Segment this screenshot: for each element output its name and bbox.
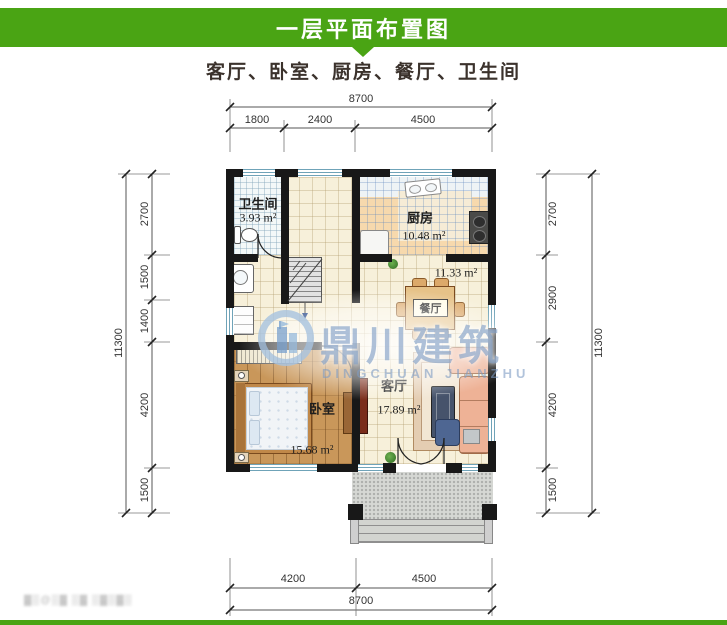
floor-plan-page: 一层平面布置图 客厅、卧室、厨房、餐厅、卫生间 餐厅 — [0, 0, 727, 625]
dim-left-total: 11300 — [113, 328, 125, 358]
dim-left-seg3: 1400 — [139, 309, 151, 333]
toilet-tank — [234, 226, 241, 244]
pillow — [249, 420, 260, 445]
dining-area: 11.33 m² — [435, 266, 478, 281]
porch-floor — [352, 472, 493, 519]
step-post-left — [350, 519, 359, 544]
kitchen-stove — [469, 211, 489, 244]
wall-kitchen-left — [352, 169, 360, 262]
room-list-subtitle: 客厅、卧室、厨房、餐厅、卫生间 — [0, 57, 727, 84]
building-logo — [258, 310, 314, 366]
wall-bathroom-right — [281, 169, 289, 262]
toilet-bowl — [241, 228, 258, 242]
footer-blurred-watermark: ▓▒@▒▓ ▒▓ ▒▓▒▓▒ — [24, 595, 133, 606]
window-kitchen — [390, 169, 452, 177]
stove-burner-2 — [473, 230, 486, 242]
porch-post-right — [482, 504, 497, 520]
dim-left-seg5: 1500 — [139, 478, 151, 502]
dim-right-seg1: 2700 — [547, 202, 559, 226]
bottom-green-strip — [0, 620, 727, 625]
window-bathroom — [243, 169, 275, 177]
wall-bathroom-bottom — [234, 254, 258, 262]
dim-right-total: 11300 — [593, 328, 605, 358]
building-logo-glyph — [265, 317, 307, 359]
dim-bottom-seg2: 4500 — [412, 573, 436, 585]
lamp-bottom — [238, 454, 245, 461]
sink-bowl-right — [425, 183, 438, 193]
wall-kitchen-bottom-left — [352, 254, 392, 262]
living-area: 17.89 m² — [378, 403, 421, 418]
dim-right-seg2: 2900 — [547, 286, 559, 310]
porch-post-left — [348, 504, 363, 520]
hall-basin — [233, 270, 248, 285]
window-living-bottom-right — [462, 464, 478, 472]
dim-left-seg2: 1500 — [139, 265, 151, 289]
dim-bottom-total: 8700 — [349, 595, 373, 607]
header-arrow-pointer — [352, 47, 374, 57]
door-jamb-right — [446, 463, 462, 473]
dim-top-seg3: 4500 — [411, 114, 435, 126]
dim-left-seg1: 2700 — [139, 202, 151, 226]
bedroom-area: 15.68 m² — [291, 443, 334, 458]
bedroom-label: 卧室 — [309, 399, 335, 418]
dim-right-seg4: 1500 — [547, 478, 559, 502]
header-bar: 一层平面布置图 — [0, 8, 727, 47]
step-post-right — [484, 519, 493, 544]
entry-steps — [350, 519, 493, 543]
refrigerator — [360, 230, 389, 256]
front-door-opening — [396, 464, 446, 472]
door-jamb-left — [383, 463, 396, 473]
armchair — [435, 419, 460, 446]
window-bedroom-bottom — [250, 464, 317, 472]
sink-bowl-left — [409, 184, 422, 194]
kitchen-label: 厨房 — [407, 208, 433, 227]
watermark-cn: 鼎川建筑 — [320, 312, 504, 372]
window-living-bottom-left — [358, 464, 383, 472]
dim-right-seg3: 4200 — [547, 393, 559, 417]
stove-burner-1 — [473, 216, 486, 228]
dim-top-seg1: 1800 — [245, 114, 269, 126]
window-stair — [298, 169, 342, 177]
window-hall-left — [226, 308, 234, 335]
kitchen-area: 10.48 m² — [403, 229, 446, 244]
dim-left-seg4: 4200 — [139, 393, 151, 417]
watermark-en: DINGCHUAN JIANZHU — [322, 366, 529, 381]
wall-kitchen-bottom-right — [446, 254, 496, 262]
dim-top-seg2: 2400 — [308, 114, 332, 126]
page-title: 一层平面布置图 — [276, 12, 451, 44]
side-table — [463, 429, 480, 444]
dim-bottom-seg1: 4200 — [281, 573, 305, 585]
bathroom-area: 3.93 m² — [240, 211, 277, 226]
dim-top-total: 8700 — [349, 93, 373, 105]
plant-living — [385, 452, 396, 463]
window-living-right — [488, 418, 496, 441]
